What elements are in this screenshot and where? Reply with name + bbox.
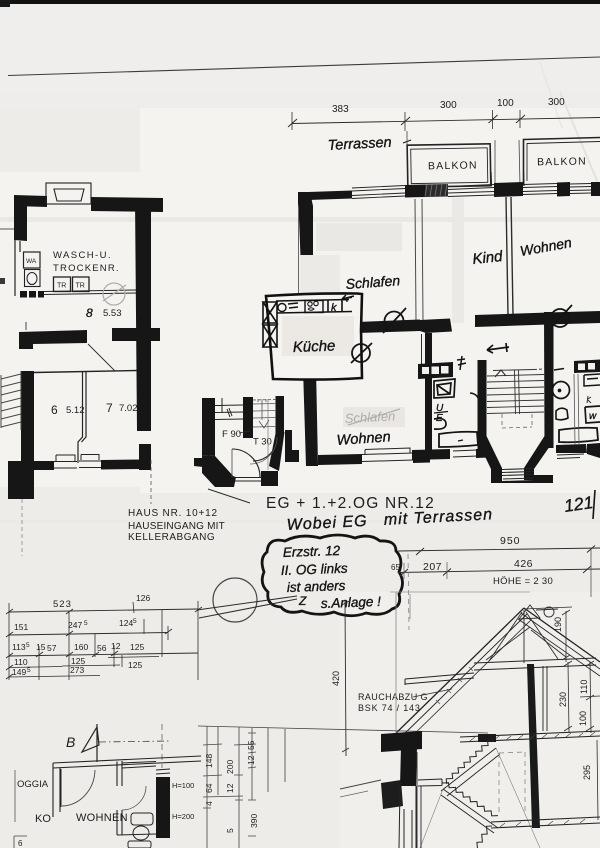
svg-text:H=200: H=200 xyxy=(172,812,194,821)
svg-text:KELLERABGANG: KELLERABGANG xyxy=(128,532,215,543)
svg-text:12: 12 xyxy=(111,641,121,651)
svg-text:55: 55 xyxy=(246,740,256,750)
svg-text:6: 6 xyxy=(51,403,58,417)
svg-text:HÖHE = 2 30: HÖHE = 2 30 xyxy=(493,576,553,587)
svg-text:295: 295 xyxy=(582,765,592,780)
svg-text:100: 100 xyxy=(497,98,514,109)
svg-text:190: 190 xyxy=(553,617,563,632)
svg-text:Erzstr. 12: Erzstr. 12 xyxy=(283,543,341,560)
svg-text:B: B xyxy=(66,734,75,750)
svg-text:12: 12 xyxy=(246,755,256,765)
svg-text:230: 230 xyxy=(558,692,568,707)
svg-text:110: 110 xyxy=(14,657,28,667)
svg-text:300: 300 xyxy=(548,97,565,108)
svg-text:426: 426 xyxy=(514,558,533,570)
svg-text:TROCKENR.: TROCKENR. xyxy=(53,263,120,274)
svg-text:56: 56 xyxy=(97,643,107,653)
svg-text:TR: TR xyxy=(76,283,85,290)
svg-text:207: 207 xyxy=(423,561,442,573)
svg-text:WOHNEN: WOHNEN xyxy=(76,812,128,824)
svg-text:64: 64 xyxy=(204,783,214,793)
svg-text:Kind: Kind xyxy=(472,248,504,268)
svg-text:OGGIA: OGGIA xyxy=(17,779,49,790)
svg-text:WA: WA xyxy=(26,258,37,265)
svg-text:5: 5 xyxy=(133,618,137,625)
svg-text:200: 200 xyxy=(225,760,235,774)
svg-text:5: 5 xyxy=(27,667,31,674)
svg-text:k: k xyxy=(331,302,337,314)
svg-text:5.53: 5.53 xyxy=(103,308,122,319)
svg-text:523: 523 xyxy=(53,599,72,610)
svg-text:8: 8 xyxy=(86,306,93,320)
svg-text:125: 125 xyxy=(130,642,144,652)
svg-text:300: 300 xyxy=(440,100,457,111)
svg-text:7.02: 7.02 xyxy=(119,403,138,414)
svg-text:148: 148 xyxy=(204,754,214,768)
svg-text:151: 151 xyxy=(14,622,28,632)
svg-text:65: 65 xyxy=(391,563,400,572)
svg-text:s.Anlage !: s.Anlage ! xyxy=(321,594,382,611)
svg-text:ist anders: ist anders xyxy=(287,578,346,595)
svg-text:Z: Z xyxy=(298,594,307,608)
svg-text:383: 383 xyxy=(332,104,349,115)
svg-text:125: 125 xyxy=(128,660,142,670)
svg-text:247: 247 xyxy=(68,620,82,630)
svg-text:KO: KO xyxy=(35,813,51,825)
svg-text:II. OG links: II. OG links xyxy=(281,561,348,578)
svg-text:273: 273 xyxy=(70,665,84,675)
svg-text:Terrassen: Terrassen xyxy=(327,135,392,154)
svg-text:950: 950 xyxy=(500,535,521,547)
svg-text:5: 5 xyxy=(225,828,235,833)
svg-text:420: 420 xyxy=(331,671,341,686)
svg-text:BSK 74 / 143: BSK 74 / 143 xyxy=(358,703,421,713)
svg-text:EG + 1.+2.OG NR.12: EG + 1.+2.OG NR.12 xyxy=(266,495,435,512)
svg-text:100: 100 xyxy=(578,711,588,726)
svg-text:BALKON: BALKON xyxy=(537,156,587,169)
svg-text:H=100: H=100 xyxy=(172,781,194,790)
svg-text:12: 12 xyxy=(225,783,235,793)
svg-text:TR: TR xyxy=(57,283,66,290)
svg-text:160: 160 xyxy=(74,642,88,652)
svg-text:5.12: 5.12 xyxy=(66,405,85,416)
svg-text:124: 124 xyxy=(119,618,133,628)
svg-text:390: 390 xyxy=(249,814,259,828)
svg-text:6: 6 xyxy=(18,839,23,848)
svg-text:T 30: T 30 xyxy=(253,437,272,448)
svg-text:w: w xyxy=(589,411,597,422)
svg-text:5: 5 xyxy=(84,620,88,627)
svg-text:113: 113 xyxy=(12,642,26,652)
svg-text:HAUSEINGANG MIT: HAUSEINGANG MIT xyxy=(128,521,225,532)
svg-text:F 90: F 90 xyxy=(222,429,241,440)
svg-text:WASCH-U.: WASCH-U. xyxy=(53,250,112,261)
svg-text:110: 110 xyxy=(579,680,589,694)
svg-text:4: 4 xyxy=(204,801,214,806)
svg-text:RAUCHABZU G: RAUCHABZU G xyxy=(358,692,428,702)
svg-text:7: 7 xyxy=(106,401,113,415)
svg-text:126: 126 xyxy=(136,593,150,603)
svg-text:121: 121 xyxy=(563,492,595,516)
svg-text:BALKON: BALKON xyxy=(428,159,478,172)
svg-text:57: 57 xyxy=(47,643,57,653)
svg-text:15: 15 xyxy=(36,642,46,652)
svg-text:149: 149 xyxy=(12,667,26,677)
svg-text:Küche: Küche xyxy=(293,338,336,356)
svg-text:5: 5 xyxy=(26,642,30,649)
svg-text:HAUS NR. 10+12: HAUS NR. 10+12 xyxy=(128,508,218,519)
